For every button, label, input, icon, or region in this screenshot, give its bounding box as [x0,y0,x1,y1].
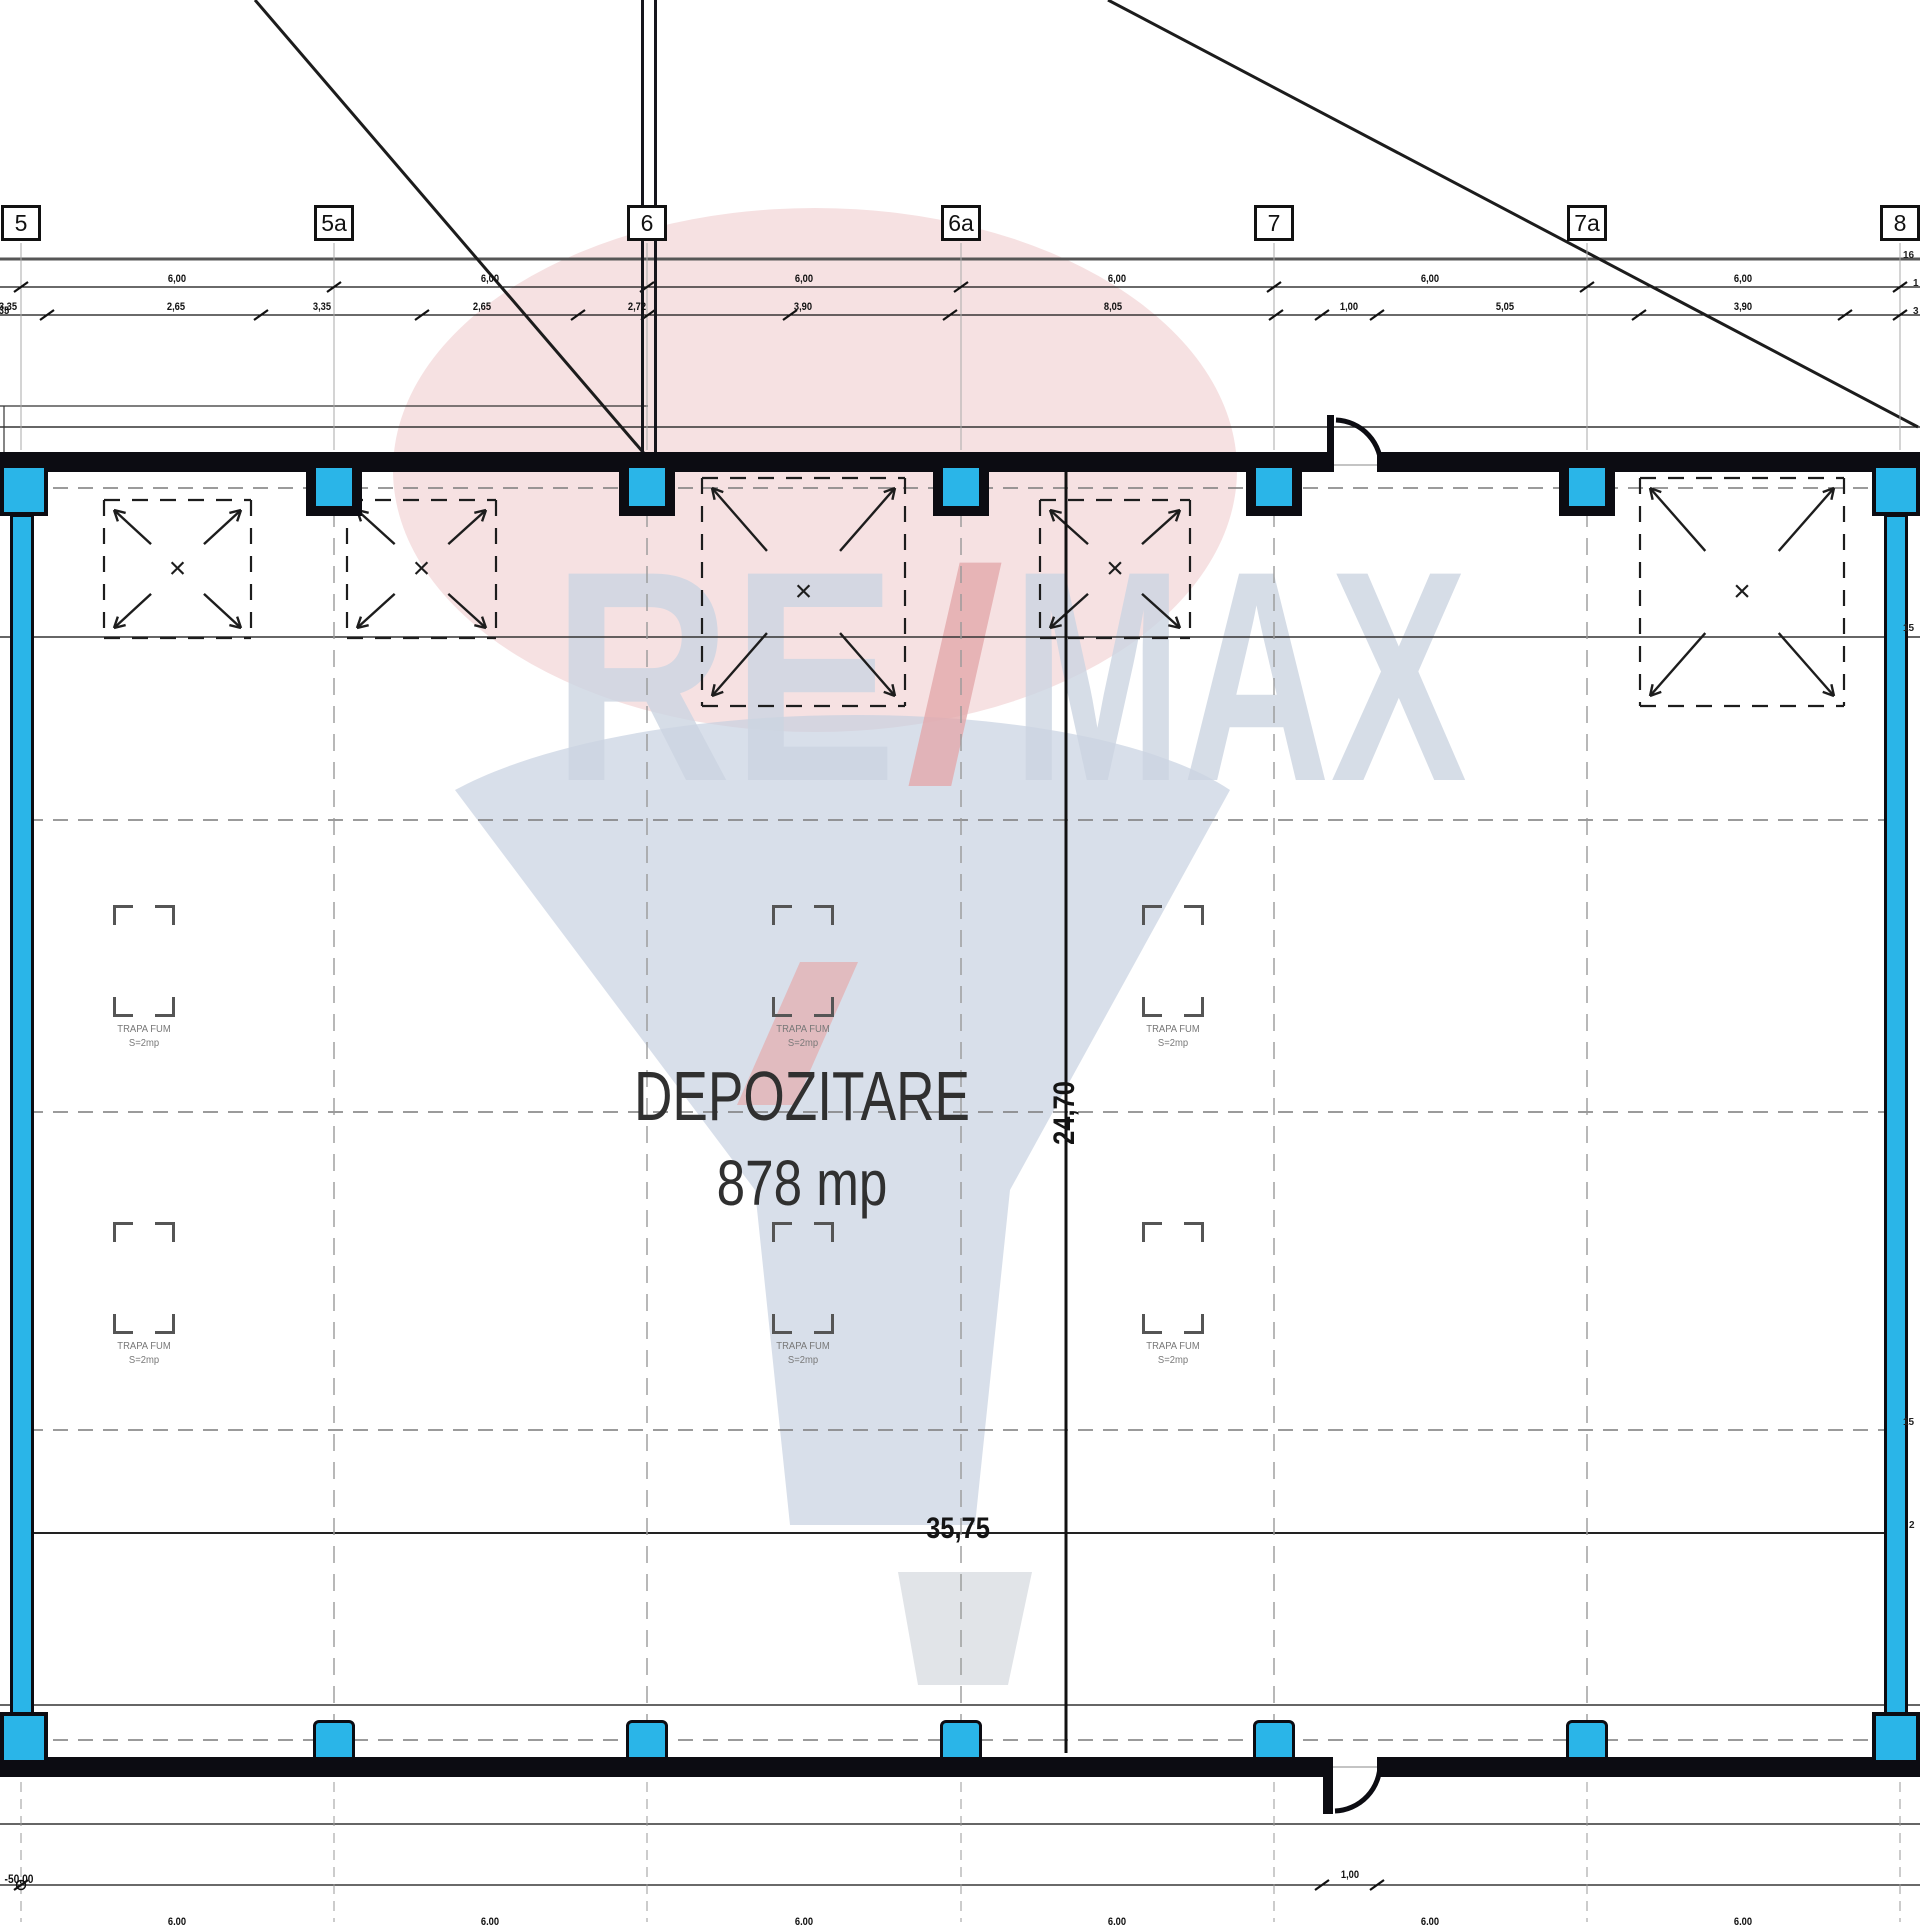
bottom-wall-segment [1377,1757,1920,1777]
skylight-x-mark: × [1106,552,1124,585]
skylight-arrow [1650,488,1705,551]
dim-label-bay: 6,00 [783,273,826,285]
smoke-hatch-corner [113,997,133,1017]
corner-column-bottom-right-fill [1876,1716,1916,1760]
edge-level-label: 15 [1903,623,1914,634]
skylight-x-mark: × [795,575,813,608]
roof-diagonal-right [1108,0,1918,427]
grid-marker-5a: 5a [314,205,354,241]
skylight-x-mark: × [1733,575,1751,608]
smoke-hatch-corner [113,905,133,925]
dim-label-sub: 3,90 [1722,301,1765,313]
skylight-arrow [1142,510,1180,544]
dim-label-bottom-clipped: 6,00 [1096,1916,1139,1925]
skylight-x-mark: × [413,552,431,585]
smoke-hatch-label: TRAPA FUM [748,1340,858,1352]
smoke-hatch-label: TRAPA FUM [748,1023,858,1035]
dim-label-sub: 8,05 [1092,301,1135,313]
dim-label-bottom-clipped: 6,00 [783,1916,826,1925]
dim-label-bottom-clipped: 6,00 [469,1916,512,1925]
smoke-hatch-corner [1142,905,1162,925]
smoke-hatch-label: TRAPA FUM [1118,1340,1228,1352]
skylight-arrow [448,510,486,544]
width-dimension-label: 35,75 [890,1512,1026,1546]
smoke-hatch-corner [155,1314,175,1334]
smoke-hatch-area-label: S=2mp [1118,1037,1228,1049]
top-column [629,468,665,506]
skylight-arrow [114,594,151,628]
skylight-arrow [1142,594,1180,628]
smoke-hatch-corner [155,1222,175,1242]
edge-level-label: 1 [1913,278,1919,289]
grid-marker-8: 8 [1880,205,1920,241]
skylight-arrow [840,633,895,696]
plan-linework: ××××× [0,0,1920,1925]
grid-marker-6: 6 [627,205,667,241]
dim-label-sub: 3,90 [782,301,825,313]
smoke-hatch-corner [155,905,175,925]
dim-label-sub: 5,05 [1484,301,1527,313]
smoke-hatch-area-label: S=2mp [89,1037,199,1049]
skylight-arrow [357,594,395,628]
dim-label-sub: 2,72 [616,301,659,313]
smoke-hatch-corner [814,905,834,925]
bottom-column [313,1720,355,1760]
smoke-hatch-symbol [772,905,834,1017]
dim-label-bottom-clipped: 6,00 [1409,1916,1452,1925]
bottom-column [626,1720,668,1760]
skylight-arrow [1050,594,1088,628]
skylight-arrow [1050,510,1088,544]
smoke-hatch-corner [1142,1222,1162,1242]
dim-label-bay: 6,00 [1722,273,1765,285]
smoke-hatch-corner [814,1222,834,1242]
bottom-door-dimension-label: 1,00 [1330,1869,1369,1881]
skylight-arrow [712,488,767,551]
dim-label-sub: 2,65 [461,301,504,313]
corner-column-bottom-left-fill [4,1716,44,1760]
smoke-hatch-label: TRAPA FUM [89,1023,199,1035]
smoke-hatch-corner [1184,1314,1204,1334]
smoke-hatch-area-label: S=2mp [89,1354,199,1366]
dim-label-bottom-clipped: 6,00 [156,1916,199,1925]
bottom-column [940,1720,982,1760]
dim-label-sub: 3,35 [0,301,29,313]
smoke-hatch-corner [772,1314,792,1334]
bottom-door-swing-arc [1335,1763,1380,1811]
edge-level-label: 16 [1903,250,1914,261]
smoke-hatch-corner [1184,1222,1204,1242]
depth-dimension-label: 24,70 [1048,1041,1082,1186]
dim-label-sub: 3,35 [301,301,344,313]
smoke-hatch-label: TRAPA FUM [89,1340,199,1352]
smoke-hatch-symbol [113,1222,175,1334]
smoke-hatch-corner [155,997,175,1017]
smoke-hatch-corner [1184,997,1204,1017]
smoke-hatch-corner [772,905,792,925]
room-label: DEPOZITARE [601,1056,1004,1136]
smoke-hatch-area-label: S=2mp [1118,1354,1228,1366]
grid-marker-5: 5 [1,205,41,241]
smoke-hatch-area-label: S=2mp [748,1037,858,1049]
dim-label-bay: 6,00 [469,273,512,285]
corner-column-top-right-fill [1876,468,1916,512]
top-wall-segment [1377,452,1920,472]
bottom-column [1566,1720,1608,1760]
top-column [1569,468,1605,506]
smoke-hatch-symbol [113,905,175,1017]
dim-label-sub: 1,00 [1328,301,1371,313]
smoke-hatch-corner [113,1314,133,1334]
smoke-hatch-symbol [772,1222,834,1334]
smoke-hatch-symbol [1142,1222,1204,1334]
skylight-x-mark: × [169,552,187,585]
skylight-arrow [204,594,241,628]
dim-label-bottom-clipped: 6,00 [1722,1916,1765,1925]
bottom-wall-segment [0,1757,1323,1777]
corner-column-top-left-fill [4,468,44,512]
top-column [943,468,979,506]
bottom-column [1253,1720,1295,1760]
smoke-hatch-label: TRAPA FUM [1118,1023,1228,1035]
skylight-arrow [840,488,895,551]
room-area-label: 878 mp [590,1146,1014,1220]
dim-label-bay: 6,00 [156,273,199,285]
skylight-arrow [1779,488,1834,551]
skylight-arrow [448,594,486,628]
floor-plan-canvas: RE / MAX ××××× DEPOZITARE 878 mp 24,70 3… [0,0,1920,1925]
grid-marker-6a: 6a [941,205,981,241]
bottom-door-leaf [1323,1757,1333,1814]
dim-label-bay: 6,00 [1096,273,1139,285]
smoke-hatch-corner [772,1222,792,1242]
smoke-hatch-corner [113,1222,133,1242]
smoke-hatch-symbol [1142,905,1204,1017]
smoke-hatch-area-label: S=2mp [748,1354,858,1366]
grid-marker-7a: 7a [1567,205,1607,241]
smoke-hatch-corner [1142,997,1162,1017]
skylight-arrow [712,633,767,696]
top-column [316,468,352,506]
level-dimension-label: -50,00 [5,1872,34,1886]
smoke-hatch-corner [814,997,834,1017]
skylight-arrow [114,510,151,544]
edge-level-label: 3 [1913,306,1919,317]
smoke-hatch-corner [1142,1314,1162,1334]
dim-label-sub: 2,65 [155,301,198,313]
smoke-hatch-corner [1184,905,1204,925]
edge-level-label: 15 [1903,1417,1914,1428]
smoke-hatch-corner [814,1314,834,1334]
smoke-hatch-corner [772,997,792,1017]
dim-label-bay: 6,00 [1409,273,1452,285]
grid-marker-7: 7 [1254,205,1294,241]
skylight-arrow [1779,633,1834,696]
skylight-arrow [357,510,395,544]
top-door-leaf [1327,415,1334,472]
top-column [1256,468,1292,506]
side-wall-right-fill [1887,517,1905,1713]
skylight-arrow [204,510,241,544]
side-wall-left-fill [13,517,31,1713]
skylight-arrow [1650,633,1705,696]
edge-level-label: 2 [1909,1520,1915,1531]
